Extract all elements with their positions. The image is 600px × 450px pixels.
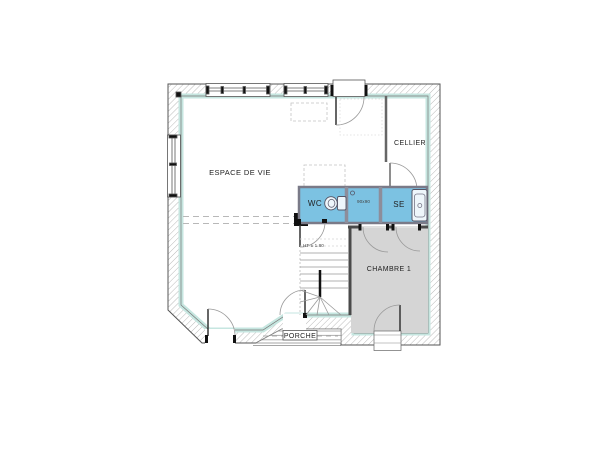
shower-room-label: SE	[393, 200, 404, 209]
bedroom1-floor	[351, 228, 428, 333]
wall-corner-mark	[176, 92, 181, 97]
porch-label: PORCHE	[284, 333, 316, 340]
window-top-mid	[284, 84, 328, 97]
wc-label: WC	[308, 199, 322, 208]
window-left	[168, 135, 181, 197]
floor-plan-page: PORCHE	[0, 0, 600, 450]
window-top-left	[206, 84, 270, 97]
bedroom1-label: CHAMBRE 1	[367, 266, 411, 273]
shower-size-label: 90x90	[357, 199, 370, 204]
stair-headroom-label: HT ± 1.80	[303, 243, 324, 248]
wet-rooms: WC 90x90 SE	[299, 187, 427, 223]
toilet-icon	[325, 197, 346, 211]
cellar-label: CELLIER	[394, 140, 426, 147]
floor-plan-drawing: PORCHE	[0, 0, 600, 450]
vanity-icon	[412, 190, 427, 222]
bedroom1: CHAMBRE 1	[348, 224, 428, 351]
living-room-label: ESPACE DE VIE	[209, 168, 271, 177]
